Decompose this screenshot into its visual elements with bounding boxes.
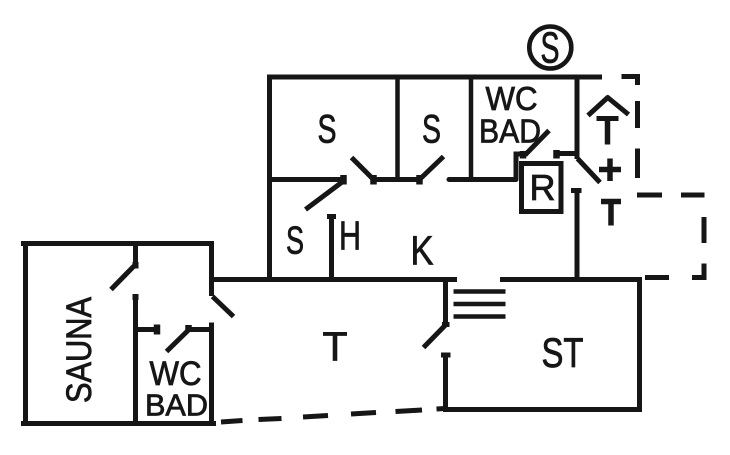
svg-text:S: S — [318, 108, 337, 152]
svg-text:BAD: BAD — [145, 388, 208, 423]
svg-text:T: T — [322, 324, 347, 370]
svg-text:S: S — [422, 108, 441, 152]
svg-text:H: H — [339, 213, 361, 259]
svg-text:SAUNA: SAUNA — [60, 296, 99, 403]
svg-text:S: S — [286, 220, 304, 263]
svg-text:K: K — [411, 228, 434, 274]
svg-text:ST: ST — [542, 329, 584, 376]
svg-text:BAD: BAD — [479, 113, 541, 150]
svg-text:R: R — [530, 167, 556, 208]
svg-text:S: S — [541, 24, 560, 73]
svg-text:WC: WC — [486, 80, 538, 117]
